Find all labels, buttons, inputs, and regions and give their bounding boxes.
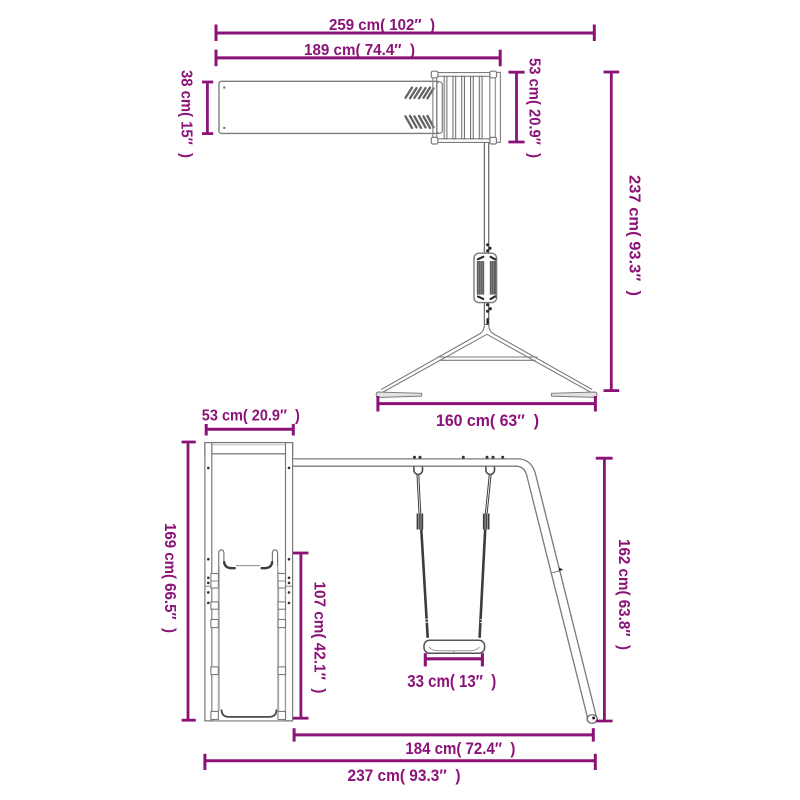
svg-text:33 cm( 13″ ): 33 cm( 13″ ) <box>407 671 496 691</box>
svg-text:237 cm( 93.3″ ): 237 cm( 93.3″ ) <box>626 175 643 296</box>
svg-text:237 cm( 93.3″ ): 237 cm( 93.3″ ) <box>348 766 461 785</box>
svg-text:107 cm( 42.1″ ): 107 cm( 42.1″ ) <box>311 582 328 694</box>
svg-text:184 cm( 72.4″ ): 184 cm( 72.4″ ) <box>405 739 515 758</box>
svg-text:53 cm( 20.9″ ): 53 cm( 20.9″ ) <box>525 58 542 158</box>
svg-text:189 cm( 74.4″ ): 189 cm( 74.4″ ) <box>304 42 415 59</box>
svg-text:259 cm( 102″ ): 259 cm( 102″ ) <box>329 17 435 34</box>
svg-text:169 cm( 66.5″ ): 169 cm( 66.5″ ) <box>161 523 178 633</box>
svg-text:160 cm( 63″ ): 160 cm( 63″ ) <box>436 411 539 430</box>
svg-text:38 cm( 15″ ): 38 cm( 15″ ) <box>178 70 195 158</box>
svg-text:53 cm( 20.9″ ): 53 cm( 20.9″ ) <box>202 407 300 424</box>
svg-text:162 cm( 63.8″ ): 162 cm( 63.8″ ) <box>615 539 632 650</box>
